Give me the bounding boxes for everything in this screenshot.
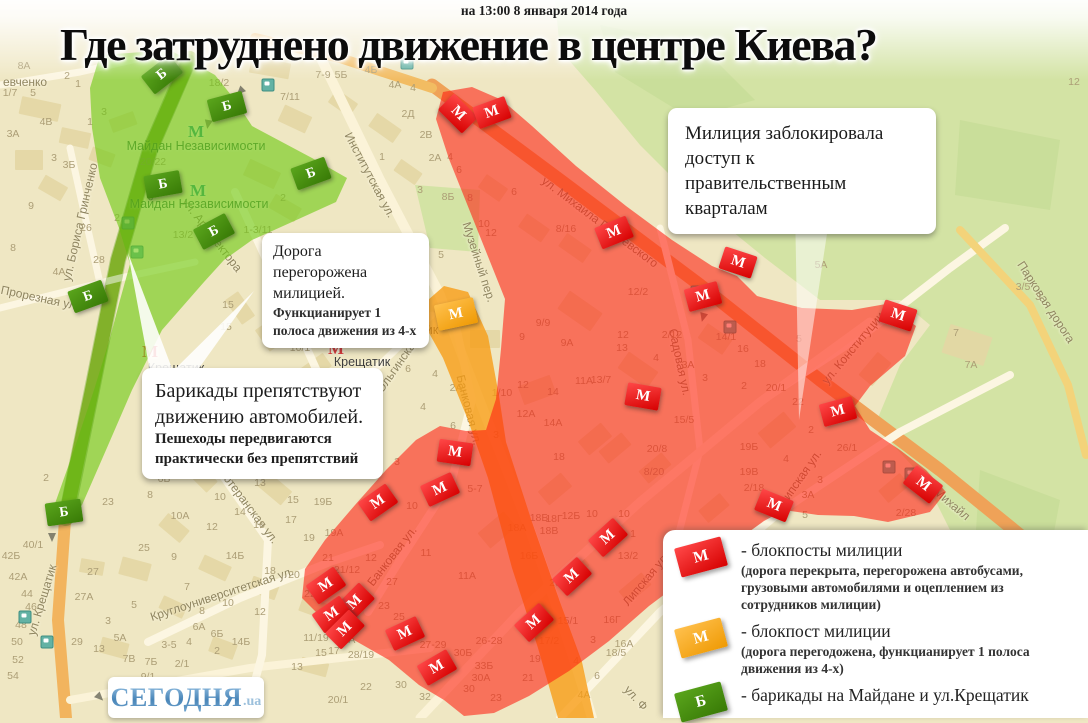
barricade-marker: Б: [207, 91, 248, 123]
police-checkpoint-marker: М: [588, 518, 629, 558]
barricade-marker: Б: [45, 499, 84, 527]
police-checkpoint-marker: М: [472, 96, 512, 129]
legend-label: - блокпосты милиции: [741, 540, 1071, 562]
page-title: Где затруднено движение в центре Киева?: [60, 18, 876, 71]
legend-item: М- блокпосты милиции(дорога перекрыта, п…: [677, 540, 1088, 613]
callout-police-text: Милиция заблокировала доступ к правитель…: [685, 121, 919, 221]
barricade-marker: Б: [143, 170, 182, 199]
police-checkpoint-marker: М: [357, 483, 398, 521]
police-checkpoint-marker: М: [437, 439, 474, 467]
police-checkpoint-marker: М: [420, 472, 461, 507]
logo-suffix: .ua: [243, 694, 261, 710]
legend-text: - барикады на Майдане и ул.Крещатик: [741, 685, 1029, 707]
legend-item: М- блокпост милиции(дорога перегодожена,…: [677, 621, 1088, 677]
legend-text: - блокпосты милиции(дорога перекрыта, пе…: [741, 540, 1071, 613]
legend-items: М- блокпосты милиции(дорога перекрыта, п…: [677, 540, 1088, 717]
police-checkpoint-marker: М: [718, 246, 757, 278]
barricade-marker: Б: [67, 280, 109, 314]
callout-police-blockade: Милиция заблокировала доступ к правитель…: [668, 108, 936, 234]
police-checkpoint-marker: М: [385, 616, 426, 651]
legend-sublabel: (дорога перегодожена, функцианирует 1 по…: [741, 643, 1071, 677]
police-checkpoint-marker: М: [438, 93, 478, 133]
police-checkpoint-marker: М: [819, 396, 858, 427]
police-checkpoint-marker: М: [878, 299, 917, 331]
police-checkpoint-marker: М: [903, 465, 944, 504]
callout-road-line2: Функцианирует 1 полоса движения из 4-х: [273, 304, 418, 339]
partial-checkpoint-marker: М: [434, 297, 479, 331]
police-checkpoint-marker: М: [594, 215, 634, 249]
police-checkpoint-marker: М: [624, 382, 661, 411]
legend-marker-icon: М: [674, 536, 728, 577]
barricade-marker: Б: [193, 213, 236, 250]
callout-barricades-line2: Пешеходы передвигаются практически без п…: [155, 430, 370, 469]
legend-label: - блокпост милиции: [741, 621, 1071, 643]
legend-marker-icon: М: [674, 618, 728, 659]
callout-road-blocked: Дорога перегорожена милицией. Функцианир…: [262, 233, 429, 348]
timestamp: на 13:00 8 января 2014 года: [0, 3, 1088, 19]
police-checkpoint-marker: М: [417, 649, 458, 686]
barricade-marker: Б: [290, 157, 332, 191]
police-checkpoint-marker: М: [514, 603, 555, 643]
legend-item: Б- барикады на Майдане и ул.Крещатик: [677, 685, 1088, 717]
segodnya-logo: СЕГОДНЯ .ua: [108, 677, 264, 718]
legend-label: - барикады на Майдане и ул.Крещатик: [741, 685, 1029, 707]
legend-panel: М- блокпосты милиции(дорога перекрыта, п…: [663, 530, 1088, 718]
callout-road-line1: Дорога перегорожена милицией.: [273, 242, 418, 304]
logo-text: СЕГОДНЯ: [111, 683, 242, 713]
police-checkpoint-marker: М: [684, 281, 723, 312]
legend-marker-icon: Б: [674, 682, 728, 723]
legend-text: - блокпост милиции(дорога перегодожена, …: [741, 621, 1071, 677]
police-checkpoint-marker: М: [754, 488, 794, 522]
legend-sublabel: (дорога перекрыта, перегорожена автобуса…: [741, 562, 1071, 613]
callout-barricades-line1: Барикады препятствуют движению автомобил…: [155, 378, 370, 430]
police-checkpoint-marker: М: [552, 557, 593, 597]
callout-barricades: Барикады препятствуют движению автомобил…: [142, 368, 383, 479]
